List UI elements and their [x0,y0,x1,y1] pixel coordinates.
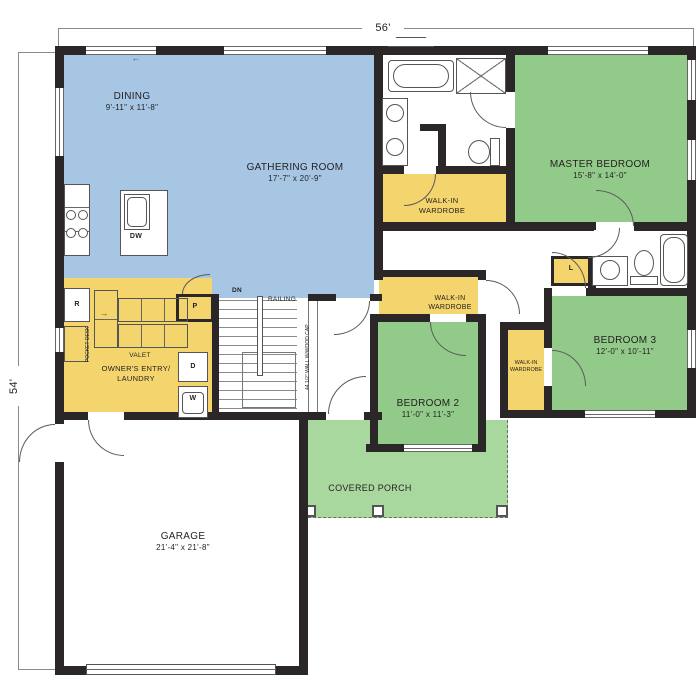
valet-bench [118,298,188,322]
toilet-bowl [634,250,654,276]
room-label-owners-entry: OWNER'S ENTRY/ LAUNDRY [84,364,188,384]
wall-segment [586,288,696,296]
sink [600,260,620,280]
room-size: 17'-7" x 20'-9" [230,174,360,184]
wall-segment [374,222,594,231]
railing-label: RAILING [264,296,300,304]
dimension-tick [18,669,55,670]
valet-bench [118,324,188,348]
wall-segment [55,666,86,675]
closet-name: WARDROBE [392,206,492,216]
closet-name: WALK-IN [400,294,500,303]
closet-name: WARDROBE [400,303,500,312]
room-size: 15'-8" x 14'-0" [540,171,660,181]
room-name: OWNER'S ENTRY/ [84,364,188,374]
wall-segment [500,410,585,418]
refrigerator-label: R [64,300,90,309]
room-name: GATHERING ROOM [230,161,360,174]
wall-segment [687,46,696,60]
dimension-tick [58,28,59,46]
closet-name: WALK-IN [392,196,492,206]
stair-railing [257,296,263,376]
washer-label: W [178,394,208,403]
room-label-garage: GARAGE 21'-4" x 21'-8" [133,530,233,553]
wall-segment [156,46,224,55]
pony-wall-label: 44 1/2" WALL W/WOOD CAP [305,304,321,410]
room-name: DINING [82,90,182,103]
wall-segment [478,270,486,280]
dimension-tick [18,52,55,53]
toilet-tank [630,276,658,285]
room-label-dining: DINING 9'-11" x 11'-8" [82,90,182,113]
room-label-master-bedroom: MASTER BEDROOM 15'-8" x 14'-0" [540,158,660,181]
dimension-height-label: 54' [4,366,24,406]
wall-segment [506,46,515,92]
door-arc [470,92,506,128]
pocket-desk-label: POCKET DESK [85,318,95,370]
cooktop-burner [78,210,88,220]
wall-segment [478,314,486,452]
sink [386,104,404,122]
dimension-line-left [18,52,19,670]
window [687,140,696,180]
room-label-covered-porch: COVERED PORCH [320,483,420,495]
wall-segment [366,444,404,452]
toilet-bowl [468,140,490,164]
stairs-dn-label: DN [226,287,248,295]
wall-segment [374,166,404,174]
wall-segment [506,128,515,231]
kitchen-counter [64,184,90,256]
wall-segment [55,46,64,88]
room-name: LAUNDRY [84,374,188,384]
wall-segment [370,294,382,301]
window [224,46,326,55]
window [585,410,655,418]
room-name: BEDROOM 2 [378,397,478,410]
door-arc [588,228,620,258]
cooktop-burner [66,228,76,238]
room-size: 21'-4" x 21'-8" [133,543,233,553]
window [548,46,648,55]
dimension-width-label: 56' [362,21,404,35]
wall-segment [687,100,696,140]
wall-segment [370,314,378,452]
window [687,330,696,368]
wall-segment [544,288,552,348]
dimension-tick [693,28,694,46]
wall-segment [655,410,696,418]
window [55,328,64,352]
toilet-tank [490,138,500,166]
closet-name: WARDROBE [496,367,556,374]
wall-segment [299,412,308,675]
entry-arrow-icon: ← [126,53,146,65]
wall-segment [308,294,336,301]
window [404,444,472,452]
tub-bumpout [388,37,434,47]
room-name: MASTER BEDROOM [540,158,660,171]
closet-name: WALK-IN [496,360,556,367]
cooktop-burner [66,210,76,220]
cooktop-burner [78,228,88,238]
room-size: 9'-11" x 11'-8" [82,103,182,113]
room-name: GARAGE [133,530,233,543]
wall-segment [124,412,308,420]
door-arc [19,424,55,462]
room-size: 11'-0" x 11'-3" [378,410,478,420]
bathtub-basin [663,237,685,283]
room-label-bedroom2: BEDROOM 2 11'-0" x 11'-3" [378,397,478,420]
wall-segment [374,270,486,277]
wall-segment [634,222,696,231]
wall-segment [472,444,486,452]
wall-segment [308,412,326,420]
garage-door [86,664,276,675]
wall-segment [55,462,64,675]
wall-segment [687,180,696,330]
wall-segment [374,314,430,322]
sink [386,138,404,156]
window [687,60,696,100]
shower [456,58,506,94]
door-arc [334,301,370,335]
wall-segment [55,412,88,420]
room-label-gathering: GATHERING ROOM 17'-7" x 20'-9" [230,161,360,184]
valet-label: VALET [116,352,164,360]
room-label-bedroom3: BEDROOM 3 12'-0" x 10'-11" [570,334,680,357]
closet-label-master-wardrobe: WALK-IN WARDROBE [392,196,492,216]
floor-plan: 56' 54' [0,0,700,700]
porch-post [496,505,508,517]
door-arc [328,376,366,414]
wall-segment [438,124,446,170]
stair-landing [242,352,296,408]
bathtub-basin [393,64,449,88]
wall-segment [436,166,514,174]
closet-label-bedroom3-wardrobe: WALK-IN WARDROBE [496,360,556,374]
wall-segment [55,156,64,328]
door-arc [88,420,124,456]
closet-label-bedroom2-wardrobe: WALK-IN WARDROBE [400,294,500,312]
room-size: 12'-0" x 10'-11" [570,347,680,357]
room-name: BEDROOM 3 [570,334,680,347]
entry-arrow-icon: → [94,308,114,320]
porch-post [372,505,384,517]
island-sink-basin [127,197,147,227]
dishwasher-label: DW [122,232,150,241]
window [55,88,64,156]
